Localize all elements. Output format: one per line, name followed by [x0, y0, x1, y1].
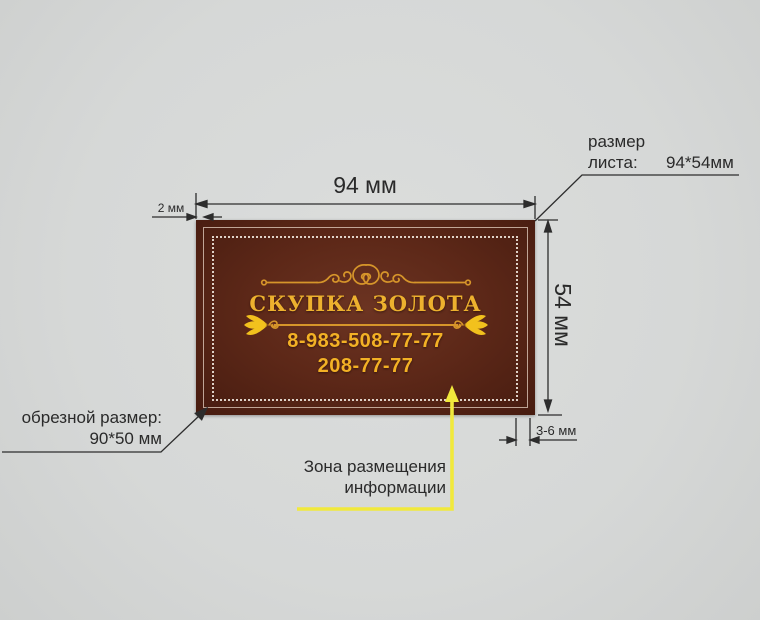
- info-zone-label: Зона размещения информации: [286, 456, 446, 498]
- sheet-width-dimension-label: 94 мм: [305, 172, 425, 199]
- sheet-size-label-line1: размер: [588, 131, 645, 152]
- bleed-dimension-label: 2 мм: [152, 201, 190, 215]
- measurement-lines: [0, 0, 760, 620]
- sheet-height-dimension-label: 54 мм: [550, 275, 576, 355]
- trim-size-value: 90*50 мм: [0, 428, 162, 449]
- sheet-size-label-line2: листа:: [588, 152, 638, 173]
- safe-margin-dimension-label: 3-6 мм: [536, 423, 576, 438]
- sheet-size-value: 94*54мм: [666, 152, 734, 173]
- trim-size-label: обрезной размер:: [0, 407, 162, 428]
- layout-diagram: СКУПКА ЗОЛОТА 8-983-508-77-77 208-77-77: [0, 0, 760, 620]
- sheet-size-leader-line: [535, 175, 739, 221]
